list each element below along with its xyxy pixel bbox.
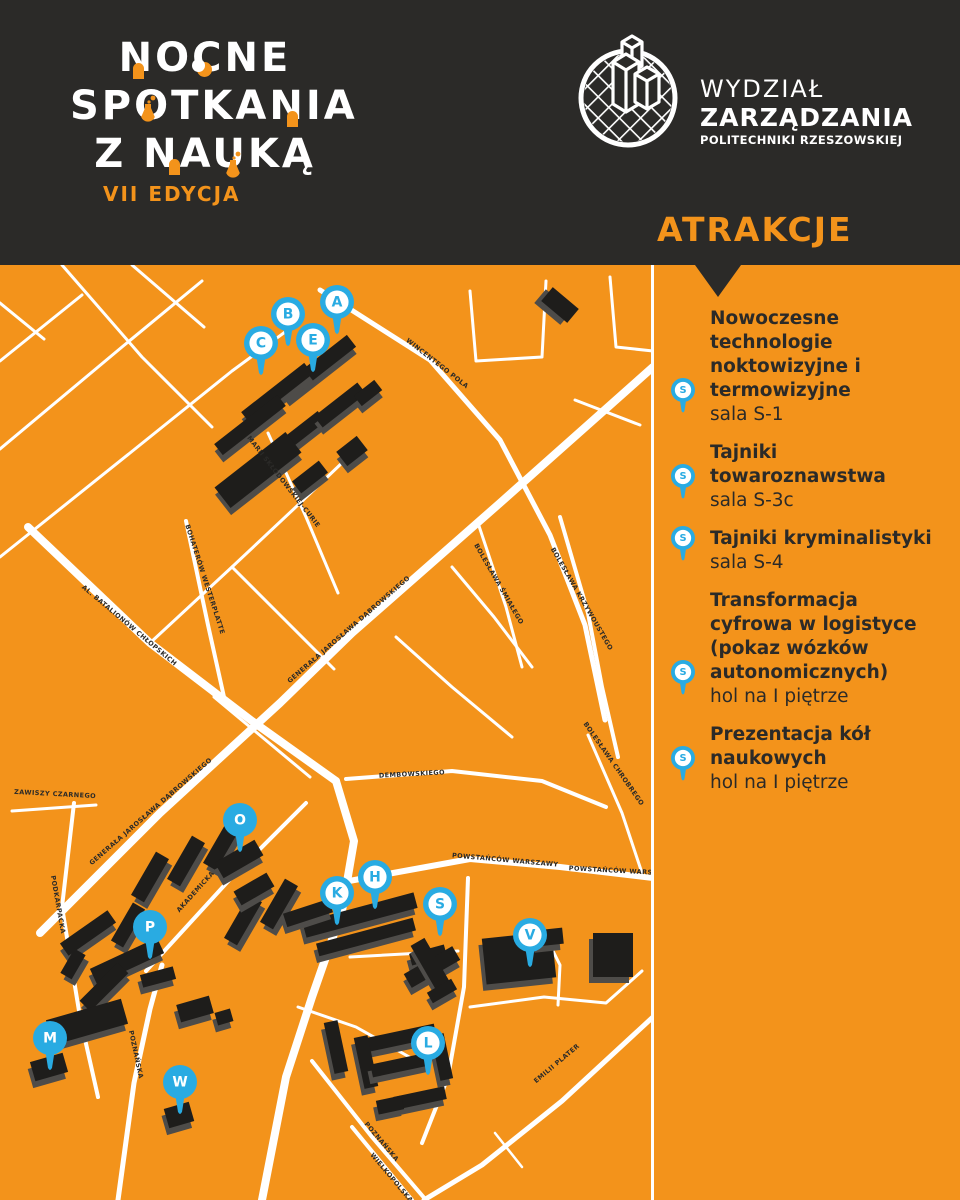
location-pin-icon: S [668,377,698,419]
attraction-title: Tajniki towaroznawstwa [710,441,935,489]
location-pin-icon: S [668,525,698,567]
door-icon [287,111,298,127]
event-title-line-3: Z NAUKĄ [70,130,340,178]
location-pin-icon: S [668,659,698,701]
attraction-title: Transformacja cyfrowa w logistyce (pokaz… [710,589,935,685]
svg-text:O: O [234,813,246,829]
svg-text:S: S [679,667,686,678]
svg-text:E: E [308,333,318,349]
speech-pointer-icon [695,265,741,297]
attraction-item: SNowoczesne technologie noktowizyjne i t… [654,307,960,427]
edition-label: VII EDYCJA [70,182,340,206]
moon-icon [197,62,212,77]
svg-text:S: S [679,385,686,396]
svg-text:W: W [172,1075,187,1091]
faculty-name-line-2: ZARZĄDZANIA [700,103,913,132]
building [589,933,633,983]
door-icon [133,63,144,79]
door-icon [169,159,180,175]
attraction-location: sala S-4 [710,551,954,575]
header: NOCNE SPOTKANIA Z NAUKĄ VII EDYCJA [0,0,960,265]
attractions-heading: ATRAKCJE [657,210,853,249]
svg-text:L: L [424,1036,433,1052]
attraction-location: hol na I piętrze [710,685,954,709]
attraction-item: STajniki kryminalistykisala S-4 [654,527,960,575]
attraction-location: sala S-1 [710,403,954,427]
event-title-line-2: SPOTKANIA [70,82,340,130]
campus-map: WINCENTEGO POLAGENERAŁA JAROSŁAWA DĄBROW… [0,265,653,1200]
attraction-location: hol na I piętrze [710,771,954,795]
svg-text:M: M [43,1031,57,1047]
attractions-panel: SNowoczesne technologie noktowizyjne i t… [654,265,960,1200]
attraction-location: sala S-3c [710,489,954,513]
svg-text:C: C [256,336,266,352]
location-pin-icon: S [668,745,698,787]
faculty-name-line-3: POLITECHNIKI RZESZOWSKIEJ [700,132,913,149]
location-pin-icon: S [668,463,698,505]
attraction-list: SNowoczesne technologie noktowizyjne i t… [654,307,960,795]
attraction-item: STajniki towaroznawstwasala S-3c [654,441,960,513]
faculty-logo-icon [577,32,679,160]
flask-icon [138,95,158,125]
svg-text:S: S [679,533,686,544]
svg-text:K: K [332,886,344,902]
svg-text:S: S [435,897,445,913]
svg-text:S: S [679,471,686,482]
attraction-title: Nowoczesne technologie noktowizyjne i te… [710,307,935,403]
attraction-title: Tajniki kryminalistyki [710,527,935,551]
svg-text:A: A [332,295,343,311]
faculty-name: WYDZIAŁ ZARZĄDZANIA POLITECHNIKI RZESZOW… [700,76,913,149]
svg-text:H: H [369,870,381,886]
attraction-item: SPrezentacja kół naukowychhol na I piętr… [654,723,960,795]
attraction-item: STransformacja cyfrowa w logistyce (poka… [654,589,960,709]
faculty-name-line-1: WYDZIAŁ [700,76,913,103]
svg-text:V: V [525,928,536,944]
flask-icon [223,151,243,181]
event-logo: NOCNE SPOTKANIA Z NAUKĄ VII EDYCJA [70,34,340,206]
main-area: WINCENTEGO POLAGENERAŁA JAROSŁAWA DĄBROW… [0,265,960,1200]
attraction-title: Prezentacja kół naukowych [710,723,935,771]
svg-text:S: S [679,753,686,764]
svg-text:B: B [283,307,294,323]
svg-text:P: P [145,920,155,936]
